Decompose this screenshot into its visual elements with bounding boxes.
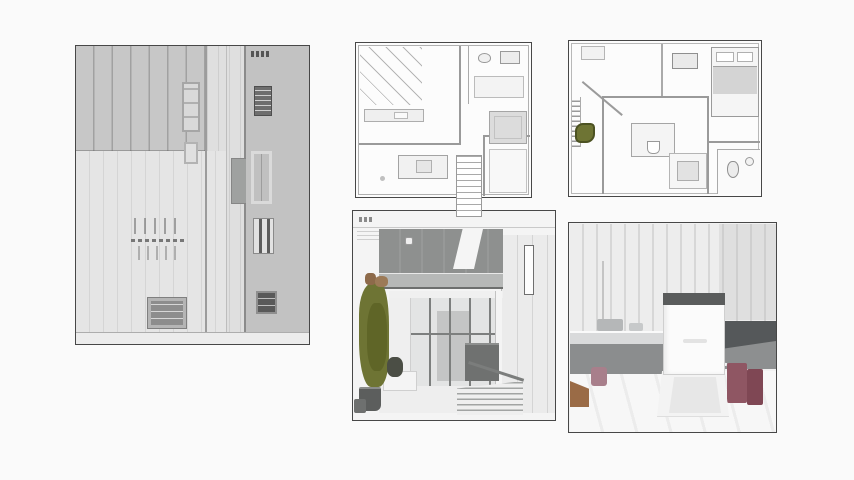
exterior-tree-branch-2 bbox=[375, 276, 388, 287]
panel-elevation bbox=[75, 45, 310, 345]
plan1-kitchen-sink bbox=[394, 112, 408, 119]
exterior-glass-transom bbox=[411, 333, 495, 335]
plan2-wall-vertical-right bbox=[707, 96, 709, 194]
elevation-fixture-marks-vertical bbox=[134, 218, 182, 234]
panel-interior-render bbox=[568, 222, 777, 433]
interior-fridge-reflection bbox=[669, 377, 721, 413]
plan2-bath-sink bbox=[745, 157, 754, 166]
interior-fridge bbox=[663, 293, 725, 375]
plan2-toilet bbox=[727, 161, 739, 178]
elevation-fixture-marks-dashes bbox=[131, 239, 186, 242]
plan2-wall-horizontal-right bbox=[709, 141, 760, 143]
plan1-wall-horizontal-left bbox=[359, 143, 459, 145]
exterior-pot-small bbox=[354, 399, 366, 413]
exterior-roofline bbox=[353, 227, 555, 228]
plan1-wall-vertical-center bbox=[459, 46, 461, 145]
exterior-shrub bbox=[387, 357, 403, 377]
interior-fridge-top-band bbox=[663, 293, 725, 305]
plan2-sink-center bbox=[647, 141, 660, 154]
plan1-toilet bbox=[478, 53, 491, 63]
elevation-joint-line-1 bbox=[205, 46, 207, 344]
exterior-tree-foliage-shade bbox=[367, 303, 387, 371]
plan1-room-right-bottom bbox=[489, 149, 527, 193]
elevation-dimension-smudge bbox=[251, 51, 271, 57]
exterior-right-narrow-window bbox=[524, 245, 534, 295]
plan2-wall-vertical-left bbox=[602, 96, 604, 194]
interior-maroon-chair-2 bbox=[747, 369, 763, 405]
elevation-base-band bbox=[76, 332, 309, 344]
plan2-plant-symbol bbox=[575, 123, 595, 143]
elevation-joint-line-2 bbox=[226, 46, 227, 344]
elevation-window-louvered bbox=[254, 86, 272, 116]
plan1-stairs bbox=[456, 155, 482, 217]
exterior-upper-vent bbox=[405, 237, 413, 245]
interior-mauve-chair bbox=[591, 367, 607, 386]
elevation-mid-window-small bbox=[184, 142, 198, 164]
elevation-bottom-vent-window bbox=[148, 298, 186, 328]
plan2-fixture-inner bbox=[677, 161, 699, 181]
interior-counter-appliance-1 bbox=[597, 319, 623, 331]
interior-fridge-handle bbox=[683, 339, 707, 343]
interior-left-counter-top bbox=[570, 331, 663, 344]
interior-wall-shadow-right bbox=[719, 224, 776, 320]
interior-left-counter-front bbox=[570, 344, 663, 374]
plan1-bath-wall bbox=[468, 46, 469, 104]
exterior-corner-dimension-mark bbox=[359, 217, 373, 222]
plan1-wall-vertical-right bbox=[483, 135, 485, 196]
exterior-lintel bbox=[389, 291, 503, 298]
drawing-collage bbox=[0, 0, 854, 480]
plan1-storage-box bbox=[416, 160, 432, 173]
interior-maroon-chair-1 bbox=[727, 363, 747, 403]
elevation-fixture-marks-lower bbox=[138, 246, 178, 260]
plan1-chair-dot bbox=[380, 176, 385, 181]
plan2-closet-top-left bbox=[581, 46, 605, 60]
elevation-mid-window-tall bbox=[182, 82, 200, 132]
panel-exterior-render bbox=[352, 210, 556, 421]
plan2-wall-horizontal-top bbox=[602, 96, 709, 98]
plan1-bath-sink bbox=[500, 51, 520, 64]
plan2-bed-blanket bbox=[713, 66, 757, 94]
panel-floor-plan-2 bbox=[568, 40, 762, 197]
interior-counter-appliance-2 bbox=[629, 323, 643, 331]
plan2-wall-vertical-topcenter bbox=[661, 44, 663, 96]
panel-floor-plan-1 bbox=[355, 42, 532, 198]
plan2-bed-pillow-1 bbox=[716, 52, 734, 62]
elevation-window-framed bbox=[251, 151, 272, 204]
plan1-tatami-inner bbox=[494, 116, 522, 139]
exterior-balcony-band bbox=[379, 273, 503, 289]
plan2-table-top-center bbox=[672, 53, 698, 69]
elevation-window-mullioned bbox=[253, 218, 274, 254]
plan1-bathtub bbox=[474, 76, 524, 98]
plan2-bed-pillow-2 bbox=[737, 52, 753, 62]
plan1-garage-hatch bbox=[360, 47, 422, 105]
elevation-window-small-dark bbox=[256, 291, 277, 314]
